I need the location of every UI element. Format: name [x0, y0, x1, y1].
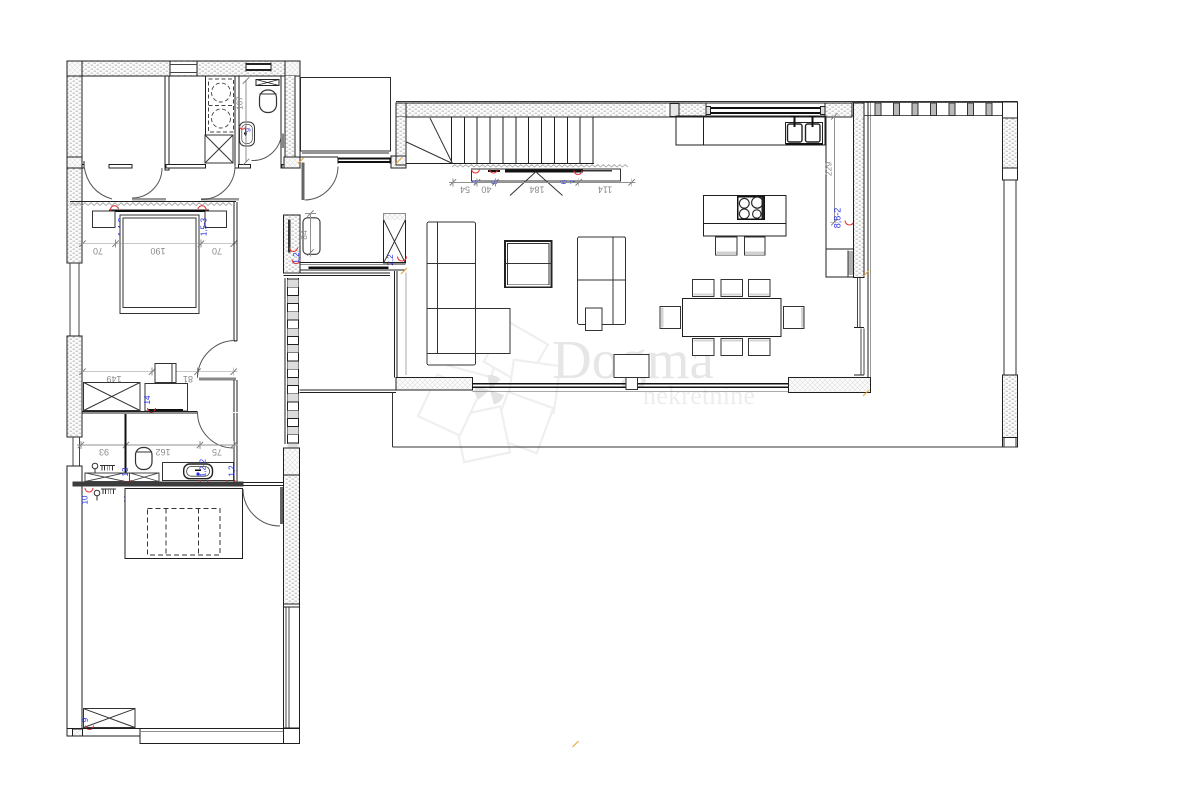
svg-text:190: 190 — [150, 246, 165, 256]
svg-text:9: 9 — [244, 128, 253, 132]
svg-text:54: 54 — [460, 185, 470, 195]
svg-text:162: 162 — [155, 447, 170, 457]
svg-text:8,8-2: 8,8-2 — [833, 208, 843, 229]
svg-text:84: 84 — [299, 230, 309, 240]
svg-text:70: 70 — [212, 246, 222, 256]
svg-text:40: 40 — [481, 185, 491, 195]
svg-text:81: 81 — [183, 374, 193, 384]
svg-text:229: 229 — [824, 162, 834, 176]
svg-text:93: 93 — [99, 447, 109, 457]
svg-text:9: 9 — [81, 717, 90, 722]
svg-text:107: 107 — [236, 96, 245, 110]
svg-text:1,2-2: 1,2-2 — [199, 458, 208, 477]
svg-text:6: 6 — [560, 179, 569, 184]
svg-text:70: 70 — [93, 246, 103, 256]
svg-text:184: 184 — [529, 185, 544, 195]
svg-text:10: 10 — [81, 495, 90, 504]
svg-text:114: 114 — [598, 185, 612, 195]
svg-text:75: 75 — [212, 447, 222, 457]
svg-text:13: 13 — [121, 467, 130, 476]
svg-text:nekretnine: nekretnine — [643, 381, 757, 410]
svg-text:14: 14 — [143, 395, 152, 404]
svg-text:1,2: 1,2 — [228, 465, 237, 477]
svg-text:1,5-3: 1,5-3 — [200, 217, 209, 236]
